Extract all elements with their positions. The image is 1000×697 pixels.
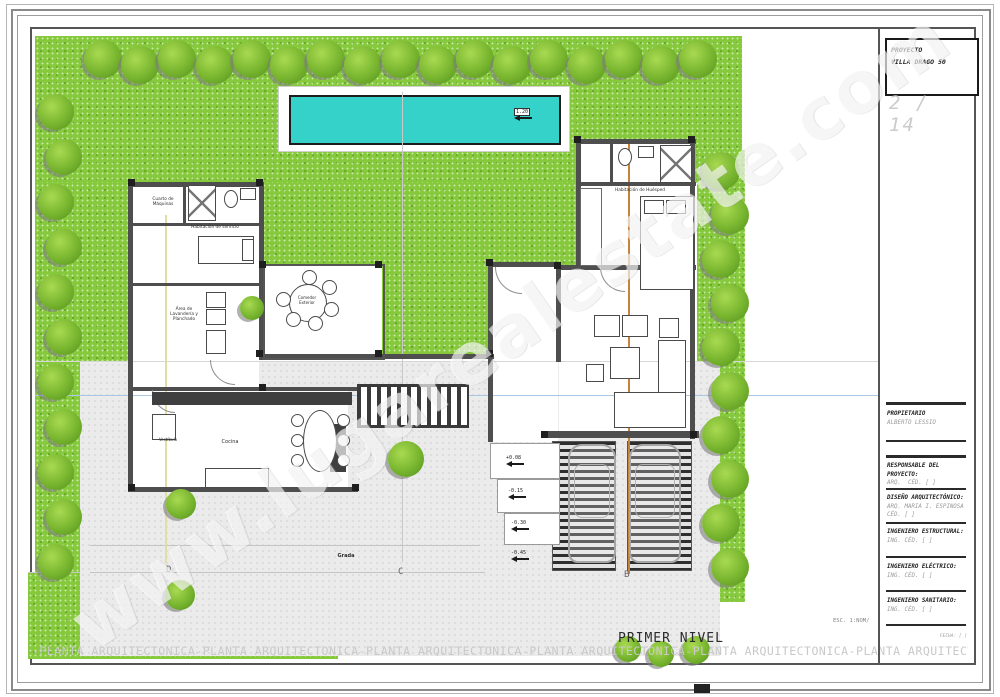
tree-icon xyxy=(711,548,749,586)
wall-segment xyxy=(556,265,561,362)
side-table xyxy=(659,318,679,338)
scale-note: ESC. 1:NOM/ xyxy=(833,618,869,624)
tree-icon xyxy=(240,296,264,320)
path-line xyxy=(90,572,485,573)
tree-icon xyxy=(38,94,74,130)
tree-icon xyxy=(38,544,74,580)
divider xyxy=(886,556,966,558)
wall-segment xyxy=(543,431,699,438)
column xyxy=(554,262,561,269)
tree-icon xyxy=(605,40,643,78)
tree-icon xyxy=(46,409,82,445)
armchair xyxy=(594,315,620,337)
divider xyxy=(886,455,966,458)
divider xyxy=(886,590,966,592)
toilet xyxy=(224,190,238,208)
electrical-section: INGENIERO ELÉCTRICO: ING. CÉD. [ ] xyxy=(887,563,969,580)
staircase xyxy=(357,384,469,428)
sanitary-section: INGENIERO SANITARIO: ING. CÉD. [ ] xyxy=(887,597,969,614)
tree-icon xyxy=(233,40,271,78)
tree-icon xyxy=(702,240,740,278)
column xyxy=(486,350,493,357)
chair xyxy=(291,414,304,427)
pillow xyxy=(644,200,664,214)
sofa xyxy=(614,392,686,428)
level-marker: -0.30 xyxy=(511,521,529,533)
lawn-area xyxy=(262,183,576,268)
chair xyxy=(322,280,337,295)
room-label-comedor-exterior: Comedor Exterior xyxy=(290,296,324,305)
tree-icon xyxy=(711,460,749,498)
tree-icon xyxy=(38,454,74,490)
tree-icon xyxy=(388,441,424,477)
kitchen-appliances xyxy=(205,468,269,488)
room-label-habitacion-servicio: Habitación de servicio xyxy=(184,226,246,231)
lawn-area xyxy=(382,268,488,358)
owner-name: ALBERTO LESSIO xyxy=(887,420,936,426)
chair xyxy=(286,312,301,327)
chair xyxy=(324,302,339,317)
tree-icon xyxy=(382,40,420,78)
wardrobe xyxy=(580,188,602,266)
section-title: RESPONSABLE DEL PROYECTO: xyxy=(887,463,939,478)
floor-plan xyxy=(0,0,1000,697)
dryer xyxy=(206,309,226,325)
tree-icon xyxy=(493,46,531,84)
room-floor xyxy=(490,266,558,442)
chair xyxy=(291,434,304,447)
room-label-cuarto-maquinas: Cuarto de Máquinas xyxy=(146,198,180,208)
tree-icon xyxy=(456,40,494,78)
column xyxy=(352,484,359,491)
entry-step xyxy=(490,443,560,479)
sink xyxy=(638,146,654,158)
divider xyxy=(886,488,966,490)
project-box: PROYECTO VILLA DRAGO 50 xyxy=(885,38,979,96)
entry-step xyxy=(497,479,560,513)
tree-icon xyxy=(702,416,740,454)
section-title: DISEÑO ARQUITECTÓNICO: xyxy=(887,495,964,501)
wall-segment xyxy=(183,182,186,226)
tree-icon xyxy=(121,46,159,84)
chair xyxy=(302,270,317,285)
coffee-table xyxy=(610,347,640,379)
toilet xyxy=(618,148,632,166)
grid-letter-c: C xyxy=(398,567,403,577)
column xyxy=(574,136,581,143)
divider xyxy=(886,402,966,405)
tree-icon xyxy=(711,284,749,322)
chair xyxy=(291,454,304,467)
wall-segment xyxy=(128,283,264,286)
divider xyxy=(886,624,966,626)
tree-icon xyxy=(419,46,457,84)
car-outline xyxy=(568,444,616,563)
label-grada: Grada xyxy=(332,554,360,560)
level-marker: +0.08 xyxy=(506,456,524,468)
tree-icon xyxy=(46,499,82,535)
column xyxy=(688,136,695,143)
pillow xyxy=(666,200,686,214)
chair xyxy=(337,454,350,467)
tree-icon xyxy=(679,40,717,78)
tree-icon xyxy=(165,580,195,610)
drawing-sheet: Cuarto de Máquinas Habitación de servici… xyxy=(0,0,1000,697)
tree-icon xyxy=(711,196,749,234)
tree-icon xyxy=(196,46,234,84)
room-label-cocina: Cocina xyxy=(216,440,244,446)
column xyxy=(256,179,263,186)
armchair xyxy=(622,315,648,337)
kitchen-counter xyxy=(152,392,352,405)
column xyxy=(256,350,263,357)
level-marker: -0.45 xyxy=(511,551,529,563)
room-label-vestibulo: Vestíbulo xyxy=(154,438,182,443)
column xyxy=(690,431,697,438)
date-note: FECHA: [ ] xyxy=(905,634,967,639)
wall-segment xyxy=(610,139,613,185)
tree-icon xyxy=(711,372,749,410)
column xyxy=(541,431,548,438)
pillow xyxy=(242,239,254,261)
divider xyxy=(886,522,966,524)
tree-icon xyxy=(46,139,82,175)
tree-icon xyxy=(166,489,196,519)
sink xyxy=(240,188,256,200)
tree-icon xyxy=(270,46,308,84)
grid-letter-b: B xyxy=(624,570,629,580)
tree-icon xyxy=(307,40,345,78)
tree-icon xyxy=(38,364,74,400)
column xyxy=(375,261,382,268)
corner-table xyxy=(586,364,604,382)
tree-icon xyxy=(46,319,82,355)
column xyxy=(375,350,382,357)
column xyxy=(128,179,135,186)
room-label-lavanderia: Área de Lavandería y Planchado xyxy=(164,308,204,323)
responsible-section: RESPONSABLE DEL PROYECTO: ARQ. CÉD. [ ] xyxy=(887,462,969,488)
structural-section: INGENIERO ESTRUCTURAL: ING. CÉD. [ ] xyxy=(887,528,969,545)
tree-icon xyxy=(38,184,74,220)
divider xyxy=(886,440,966,442)
column xyxy=(128,484,135,491)
wall-segment xyxy=(128,182,133,492)
project-name: VILLA DRAGO 50 xyxy=(891,58,946,66)
column xyxy=(486,259,493,266)
grid-letter-d: D xyxy=(166,565,171,575)
tree-icon xyxy=(702,328,740,366)
shower xyxy=(660,145,692,183)
chair xyxy=(276,292,291,307)
footer-banner: -PLANTA ARQUITECTONICA-PLANTA ARQUITECTO… xyxy=(32,644,968,658)
level-marker: -0.15 xyxy=(508,489,526,501)
chair xyxy=(337,414,350,427)
section-title: INGENIERO SANITARIO: xyxy=(887,598,957,604)
tree-icon xyxy=(38,274,74,310)
chair xyxy=(308,316,323,331)
owner-label: PROPIETARIO xyxy=(887,411,925,417)
tree-icon xyxy=(702,152,740,190)
tree-icon xyxy=(702,504,740,542)
border-mark xyxy=(694,684,710,693)
tree-icon xyxy=(642,46,680,84)
chair xyxy=(337,434,350,447)
owner-section: PROPIETARIO ALBERTO LESSIO xyxy=(887,410,969,427)
section-title: INGENIERO ELÉCTRICO: xyxy=(887,564,957,570)
laundry-sink xyxy=(206,330,226,354)
tree-icon xyxy=(568,46,606,84)
section-title: INGENIERO ESTRUCTURAL: xyxy=(887,529,964,535)
sheet-number: 2 / 14 xyxy=(889,92,965,136)
dining-table xyxy=(303,410,337,472)
shower xyxy=(188,185,216,221)
column xyxy=(259,261,266,268)
path-line xyxy=(90,545,480,546)
grid-line-c xyxy=(402,92,403,562)
pool-depth-marker: 1.20 xyxy=(514,110,532,122)
car-outline xyxy=(629,444,681,563)
column xyxy=(259,384,266,391)
reference-line xyxy=(35,361,878,362)
wall-segment xyxy=(576,139,696,144)
tree-icon xyxy=(46,229,82,265)
washer xyxy=(206,292,226,308)
project-label: PROYECTO xyxy=(891,46,922,54)
room-label-habitacion-huesped: Habitación de Huésped xyxy=(604,189,676,194)
architect-section: DISEÑO ARQUITECTÓNICO: ARQ. MARIA I. ESP… xyxy=(887,494,969,520)
tree-icon xyxy=(84,40,122,78)
